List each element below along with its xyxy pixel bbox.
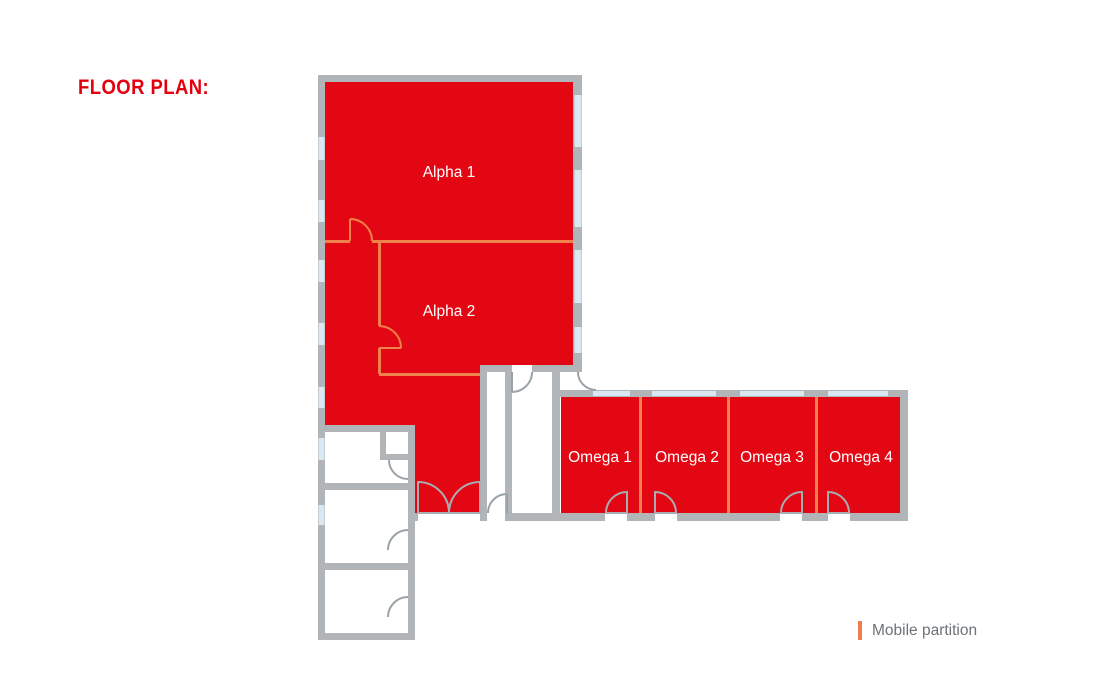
wall-top [318, 75, 582, 82]
wall-corridor-b-right [552, 365, 560, 521]
mobile-partition-marker-icon [858, 621, 862, 640]
wall-rooms-top [318, 425, 415, 432]
corridor-a-door [488, 494, 507, 513]
room-label-alpha-2: Alpha 2 [423, 303, 476, 321]
window-left-1 [319, 137, 325, 160]
window-omega-4 [828, 391, 888, 396]
window-left-2 [319, 200, 325, 222]
wall-corridor-bottom [507, 513, 552, 521]
room-label-omega-1: Omega 1 [568, 449, 632, 467]
window-omega-1 [593, 391, 630, 396]
window-right-3 [575, 250, 582, 303]
wall-omega-bottom-1 [552, 513, 605, 521]
wall-rooms-bottom [318, 633, 415, 640]
window-right-4 [575, 327, 582, 353]
corridor-b-door [512, 372, 532, 392]
window-left-4 [319, 323, 325, 345]
wall-omega-right [900, 390, 908, 521]
window-left-3 [319, 260, 325, 282]
window-omega-2 [652, 391, 716, 396]
wall-rooms-divider-1 [325, 483, 408, 490]
service-room1-door [389, 460, 408, 479]
wall-omega-bottom-2 [627, 513, 655, 521]
floor-plan-drawing [0, 0, 1110, 681]
window-omega-3 [740, 391, 804, 396]
wall-corridor-a-left [480, 365, 487, 521]
room-label-omega-2: Omega 2 [655, 449, 719, 467]
room-label-omega-3: Omega 3 [740, 449, 804, 467]
page-title: FLOOR PLAN: [78, 76, 209, 100]
room-label-alpha-1: Alpha 1 [423, 164, 476, 182]
wall-closet-bottom [380, 454, 408, 460]
wall-omega-bottom-4 [802, 513, 828, 521]
wall-rooms-divider-2 [325, 563, 408, 570]
window-left-6 [319, 438, 325, 460]
window-left-5 [319, 387, 325, 408]
floor-plan-page: FLOOR PLAN: Alpha 1 Alpha 2 Omega 1 Omeg… [0, 0, 1110, 681]
room-label-omega-4: Omega 4 [829, 449, 893, 467]
window-right-2 [575, 170, 582, 227]
wall-omega-bottom-5 [850, 513, 908, 521]
legend-label: Mobile partition [872, 622, 977, 640]
service-room3-door [388, 597, 408, 617]
wall-omega-bottom-3 [677, 513, 780, 521]
exterior-door [578, 372, 596, 390]
wall-rooms-right [408, 425, 415, 640]
window-left-7 [319, 505, 325, 525]
service-room2-door [388, 530, 408, 550]
legend: Mobile partition [858, 621, 977, 640]
window-right-1 [575, 95, 582, 147]
